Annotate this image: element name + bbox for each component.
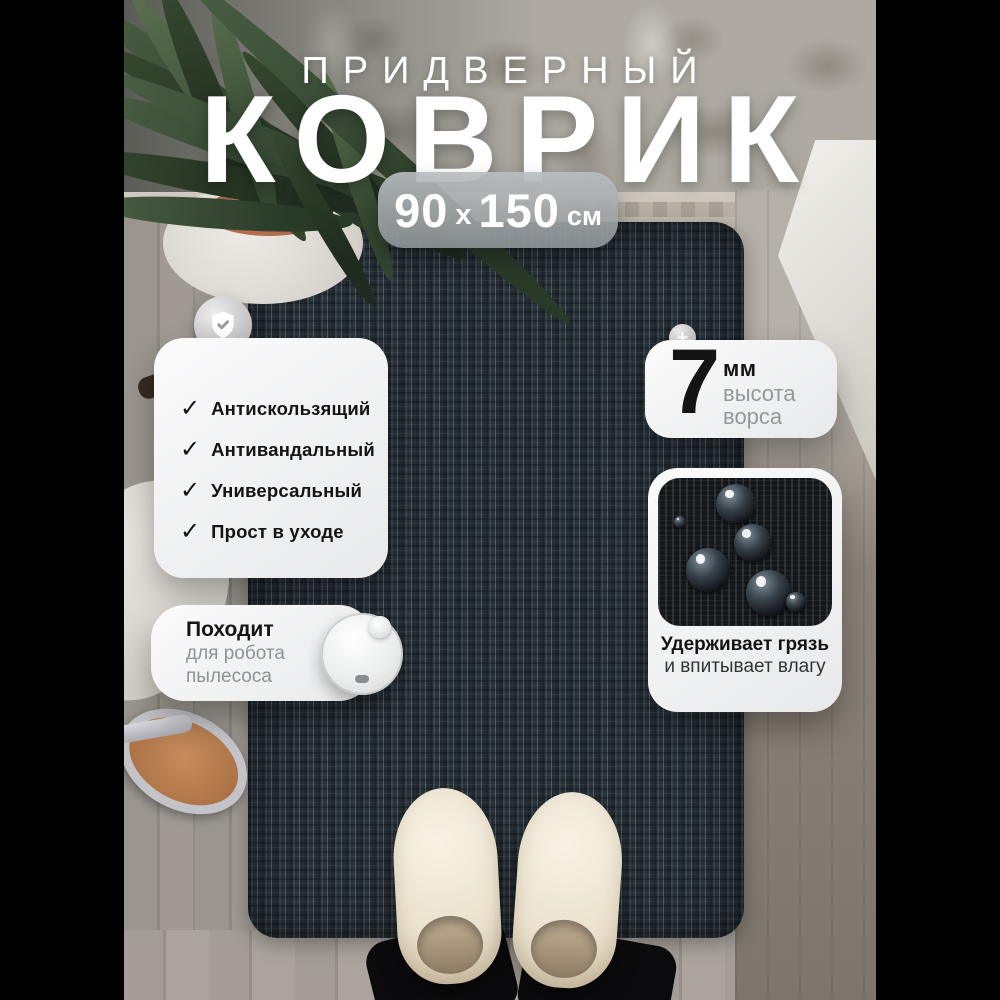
feature-label: Универсальный [211,480,362,502]
water-drop [716,484,756,524]
feature-row: ✓ Прост в уходе [180,511,388,552]
pile-height-labels: мм высота ворса [723,356,796,428]
water-drop [786,592,806,612]
pillarbox-left [0,0,124,1000]
size-separator: x [455,199,471,232]
size-width: 90 [394,183,448,238]
check-icon: ✓ [180,520,200,544]
feature-row: ✓ Антивандальный [180,429,388,470]
robot-vacuum [321,613,403,695]
pile-height-card: 7 мм высота ворса [645,340,837,438]
check-icon: ✓ [180,479,200,503]
features-card: ✓ Антискользящий ✓ Антивандальный ✓ Унив… [154,338,388,578]
water-drop [674,516,686,528]
feature-label: Прост в уходе [211,521,344,543]
slipper-opening [416,914,485,975]
feature-row: ✓ Антискользящий [180,388,388,429]
moisture-caption-regular: и впитывает влагу [648,656,842,678]
pile-height-unit: мм [723,356,796,382]
check-icon: ✓ [180,397,200,421]
moisture-caption-bold: Удерживает грязь [648,634,842,656]
size-badge: 90 x 150 см [378,172,618,248]
feature-row: ✓ Универсальный [180,470,388,511]
pile-height-label2: ворса [723,405,796,428]
size-length: 150 [479,183,560,238]
water-drop [734,524,772,562]
pile-height-value: 7 [669,332,720,433]
mat-closeup-photo [658,478,832,626]
vacuum-sensor [355,675,369,683]
pillarbox-right [876,0,1000,1000]
moisture-card: Удерживает грязь и впитывает влагу [648,468,842,712]
pile-height-label1: высота [723,382,796,405]
check-icon: ✓ [180,438,200,462]
moisture-caption: Удерживает грязь и впитывает влагу [648,634,842,678]
water-drop [746,570,792,616]
slipper-opening [529,918,599,980]
product-image-canvas: ПРИДВЕРНЫЙ КОВРИК 90 x 150 см ✓ Антискол… [0,0,1000,1000]
feature-label: Антискользящий [211,398,370,420]
size-unit: см [567,201,602,232]
water-drop [686,548,730,592]
hallway-photo: ПРИДВЕРНЫЙ КОВРИК 90 x 150 см ✓ Антискол… [123,0,876,1000]
shield-check-icon [207,309,239,341]
vacuum-lidar-bump [369,616,391,638]
feature-label: Антивандальный [211,439,375,461]
